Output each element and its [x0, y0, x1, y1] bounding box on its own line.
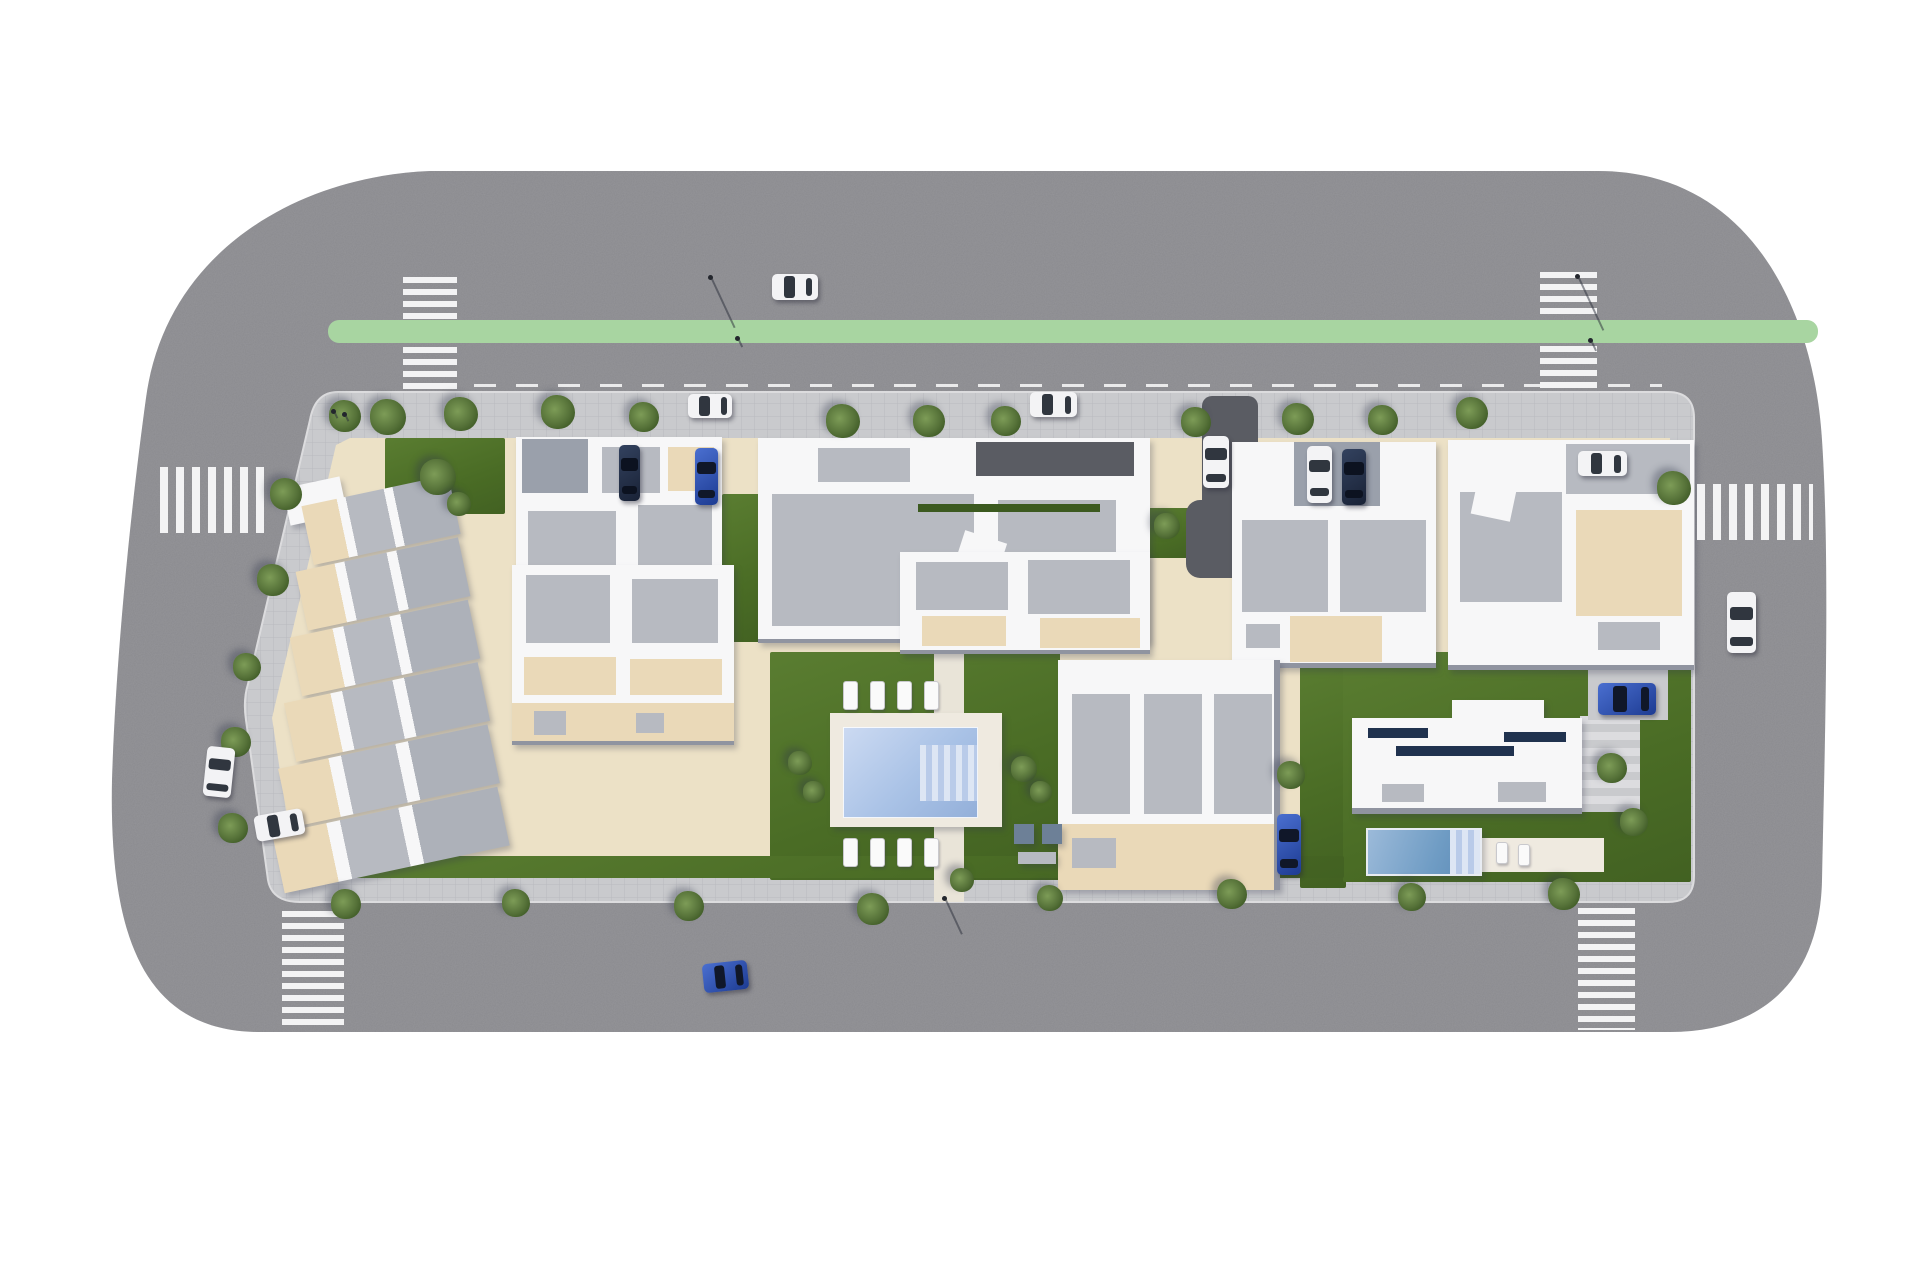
car-glass — [289, 813, 299, 833]
tree — [1456, 397, 1488, 429]
person — [735, 336, 740, 341]
tree — [803, 781, 825, 803]
tree — [1398, 883, 1426, 911]
building-block-5 — [1448, 440, 1694, 670]
car — [772, 274, 818, 300]
tree — [1011, 756, 1037, 782]
car — [1578, 451, 1627, 476]
roof-block — [1014, 824, 1034, 844]
car-glass — [208, 758, 232, 771]
car-glass — [1613, 686, 1627, 712]
patio-furniture — [1598, 622, 1660, 650]
car-glass — [1205, 448, 1226, 459]
car — [688, 394, 732, 418]
crosswalk — [282, 911, 344, 1030]
roof-block — [512, 741, 734, 745]
car-glass — [1065, 396, 1072, 414]
roof-block — [1366, 828, 1482, 876]
tree — [1368, 405, 1398, 435]
tree — [1037, 885, 1063, 911]
tree — [1277, 761, 1305, 789]
roof-block — [630, 659, 722, 695]
person — [942, 896, 947, 901]
roof-planters — [918, 504, 1100, 512]
tree — [1217, 879, 1247, 909]
roof-block — [1144, 694, 1202, 814]
crosswalk — [1578, 908, 1635, 1030]
car-glass — [1641, 687, 1649, 710]
roof-furniture — [1498, 782, 1546, 802]
person — [708, 275, 713, 280]
car-glass — [784, 276, 795, 297]
car — [695, 448, 718, 505]
tree — [674, 891, 704, 921]
tree — [826, 404, 860, 438]
crosswalk — [1697, 484, 1813, 540]
tree — [1597, 753, 1627, 783]
tree — [1548, 878, 1580, 910]
solar-panels — [1368, 728, 1428, 738]
car-glass — [1591, 453, 1603, 474]
villa — [1352, 700, 1592, 816]
car-glass — [1614, 455, 1621, 473]
car-glass — [714, 965, 727, 990]
sun-lounger — [843, 838, 858, 867]
sun-lounger — [843, 681, 858, 710]
tree — [370, 399, 406, 435]
car-glass — [721, 397, 727, 414]
villa-pool — [1366, 828, 1482, 876]
patio-furniture — [1072, 838, 1116, 868]
roof-block — [526, 575, 610, 643]
tree — [502, 889, 530, 917]
crosswalk — [1540, 346, 1597, 390]
roof-block — [900, 650, 1150, 654]
car-glass — [1206, 474, 1226, 481]
tree — [1154, 513, 1180, 539]
building-block-2-south — [512, 565, 734, 745]
patio-furniture — [534, 711, 566, 735]
roof-furniture — [1382, 784, 1424, 802]
roof-block — [1576, 510, 1682, 616]
car-glass — [1279, 829, 1299, 842]
tree — [1620, 808, 1648, 836]
tree — [331, 889, 361, 919]
roof-block — [524, 657, 616, 695]
tree — [420, 459, 456, 495]
car — [1030, 392, 1077, 417]
car — [202, 746, 235, 799]
car-glass — [622, 486, 638, 494]
garage-ramp — [522, 439, 588, 493]
cycle-lane — [328, 320, 1818, 343]
crosswalk — [403, 347, 457, 390]
tree — [950, 868, 974, 892]
tree — [541, 395, 575, 429]
building-pool-townhouses — [1058, 660, 1280, 890]
car-glass — [621, 458, 638, 470]
site-plan-stage — [0, 0, 1920, 1280]
roof-block — [632, 579, 718, 643]
tree — [913, 405, 945, 437]
sun-lounger — [870, 681, 885, 710]
car — [1727, 592, 1756, 653]
parking-ramp — [976, 442, 1134, 476]
sun-lounger — [897, 838, 912, 867]
car-glass — [1344, 462, 1364, 474]
patio-furniture — [1246, 624, 1280, 648]
tree — [444, 397, 478, 431]
crosswalk — [160, 467, 272, 533]
tree — [857, 893, 889, 925]
tree — [233, 653, 261, 681]
roof-block — [1042, 824, 1062, 844]
roof-block — [1040, 618, 1140, 648]
car-glass — [806, 278, 812, 297]
roof-block — [916, 562, 1008, 610]
car-glass — [266, 814, 281, 837]
roof-block — [818, 448, 910, 482]
roof-block — [922, 616, 1006, 646]
car — [702, 960, 750, 994]
solar-panels — [1396, 746, 1514, 756]
car — [1203, 436, 1229, 488]
tree — [447, 492, 471, 516]
crosswalk — [403, 277, 457, 320]
solar-panels — [1504, 732, 1566, 742]
lane-dash-line — [432, 384, 1662, 387]
sun-lounger — [870, 838, 885, 867]
tree — [629, 402, 659, 432]
car-glass — [1309, 460, 1330, 473]
car-glass — [1345, 490, 1363, 498]
person — [1575, 274, 1580, 279]
roof-block — [1028, 560, 1130, 614]
car-glass — [1042, 394, 1053, 415]
car-glass — [1730, 607, 1754, 620]
roof-block — [1242, 520, 1328, 612]
roof-block — [1018, 852, 1056, 864]
car-glass — [699, 396, 710, 416]
car-glass — [735, 964, 743, 985]
building-block-3-south — [900, 552, 1150, 654]
tree — [1282, 403, 1314, 435]
tree — [788, 751, 812, 775]
patio-furniture — [636, 713, 664, 733]
person — [331, 409, 336, 414]
car — [1277, 814, 1301, 875]
lawn — [1300, 658, 1346, 888]
car-glass — [1310, 488, 1329, 496]
tree — [1657, 471, 1691, 505]
car — [1307, 446, 1332, 503]
car-glass — [206, 783, 228, 792]
tree — [991, 406, 1021, 436]
person — [342, 412, 347, 417]
roof-block — [1072, 694, 1130, 814]
swimming-pool-area — [830, 713, 1002, 827]
car — [1342, 449, 1366, 505]
sun-lounger — [924, 838, 939, 867]
building-left-townhouses — [270, 488, 506, 880]
roof-block — [1290, 616, 1382, 662]
car-glass — [698, 490, 715, 498]
roof-block — [1352, 808, 1582, 814]
sun-lounger — [897, 681, 912, 710]
roof-block — [1340, 520, 1426, 612]
roof-block — [1214, 694, 1272, 814]
car-glass — [1730, 637, 1752, 646]
person — [1588, 338, 1593, 343]
tree — [257, 564, 289, 596]
car-glass — [1280, 859, 1298, 868]
car — [619, 445, 640, 501]
tree — [218, 813, 248, 843]
building-block-4 — [1232, 442, 1436, 668]
sun-lounger — [1496, 842, 1508, 864]
sun-lounger — [1518, 844, 1530, 866]
car — [1598, 683, 1656, 715]
sun-lounger — [924, 681, 939, 710]
roof-block — [1448, 665, 1694, 670]
car-glass — [697, 462, 716, 475]
pool-rim — [843, 727, 978, 818]
tree — [270, 478, 302, 510]
garden-pergola — [1014, 824, 1064, 868]
tree — [1181, 407, 1211, 437]
tree — [1030, 781, 1052, 803]
